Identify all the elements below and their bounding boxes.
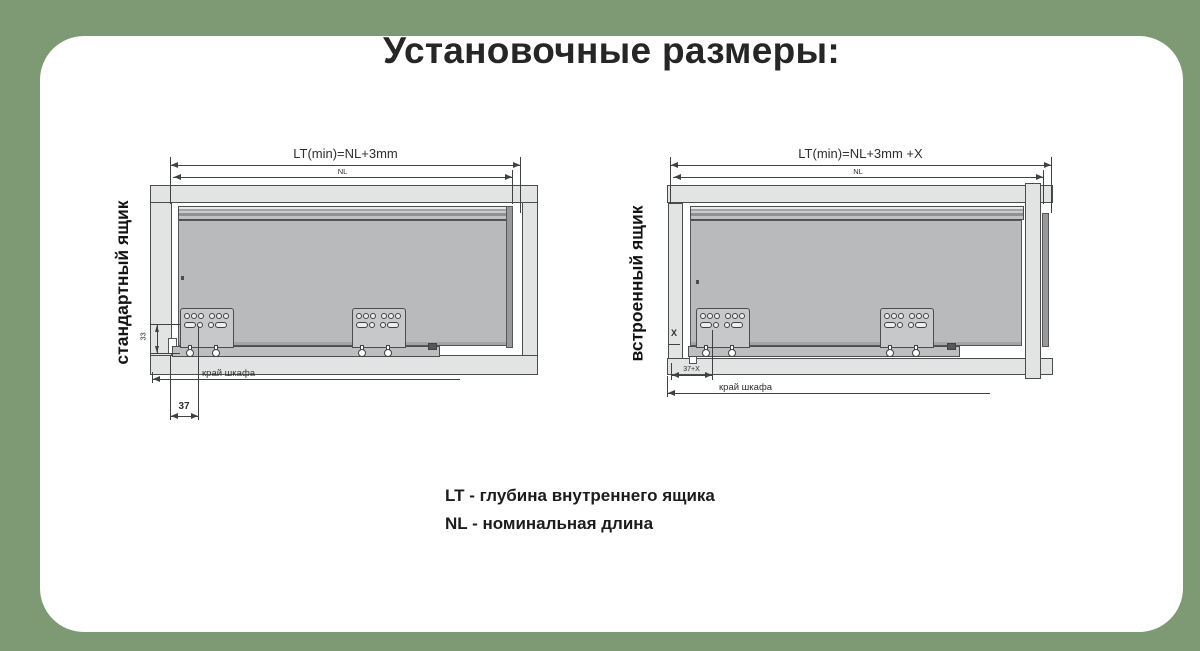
keyhole-slot <box>212 345 220 357</box>
drawer-rail-bands <box>178 206 512 220</box>
bracket-holes-row <box>356 322 399 328</box>
dim-label-cabinet-edge: край шкафа <box>202 368 255 379</box>
bracket-holes-row <box>700 322 743 328</box>
cabinet-bottom-panel <box>667 358 1053 375</box>
dim-label-33: 33 <box>139 332 148 340</box>
mounting-bracket <box>180 308 234 348</box>
dim-label-lt: LT(min)=NL+3mm +X <box>670 146 1051 161</box>
drawer-back-edge <box>506 206 513 348</box>
keyhole-slot <box>728 345 736 357</box>
bracket-holes-row <box>184 322 227 328</box>
cabinet-back-panel <box>522 185 538 375</box>
keyhole-slot <box>358 345 366 357</box>
legend-lt: LT - глубина внутреннего ящика <box>445 482 715 510</box>
dim-label-37x: 37+X <box>671 366 712 373</box>
drawer-rail-bands <box>690 206 1024 220</box>
cabinet-back-panel <box>1025 183 1041 379</box>
rail-end-stop <box>428 343 437 350</box>
rail-end-stop <box>947 343 956 350</box>
bracket-holes-row <box>884 313 929 319</box>
panel-pin <box>181 276 184 280</box>
diagram-built-in-drawer: LT(min)=NL+3mm +X NL X 37+X <box>655 140 1125 440</box>
label-built-in-drawer: встроенный ящик <box>627 200 648 368</box>
dim-label-lt: LT(min)=NL+3mm <box>170 146 521 161</box>
keyhole-slot <box>886 345 894 357</box>
legend: LT - глубина внутреннего ящика NL - номи… <box>445 482 715 537</box>
cabinet-top-panel <box>150 185 538 203</box>
mounting-bracket <box>880 308 934 348</box>
bracket-holes-row <box>184 313 229 319</box>
keyhole-slot <box>186 345 194 357</box>
bracket-holes-row <box>700 313 745 319</box>
panel-pin <box>696 280 699 284</box>
drawer-back-edge <box>1042 213 1049 347</box>
label-standard-drawer: стандартный ящик <box>112 190 133 375</box>
dim-label-x: X <box>671 328 677 338</box>
dim-label-37: 37 <box>170 401 198 412</box>
cabinet-top-panel <box>667 185 1053 203</box>
mounting-bracket <box>352 308 406 348</box>
keyhole-slot <box>384 345 392 357</box>
dim-label-cabinet-edge: край шкафа <box>719 382 772 393</box>
bracket-holes-row <box>884 322 927 328</box>
mounting-bracket <box>696 308 750 348</box>
cabinet-front-strip <box>668 203 683 363</box>
dim-label-nl: NL <box>173 167 512 176</box>
bracket-holes-row <box>356 313 401 319</box>
legend-nl: NL - номинальная длина <box>445 510 715 538</box>
diagram-standard-drawer: LT(min)=NL+3mm NL 33 край шкафа <box>140 140 610 440</box>
keyhole-slot <box>702 345 710 357</box>
dim-label-nl: NL <box>673 167 1043 176</box>
page-background: Установочные размеры: стандартный ящик в… <box>0 0 1200 651</box>
page-title: Установочные размеры: <box>40 30 1183 72</box>
keyhole-slot <box>912 345 920 357</box>
